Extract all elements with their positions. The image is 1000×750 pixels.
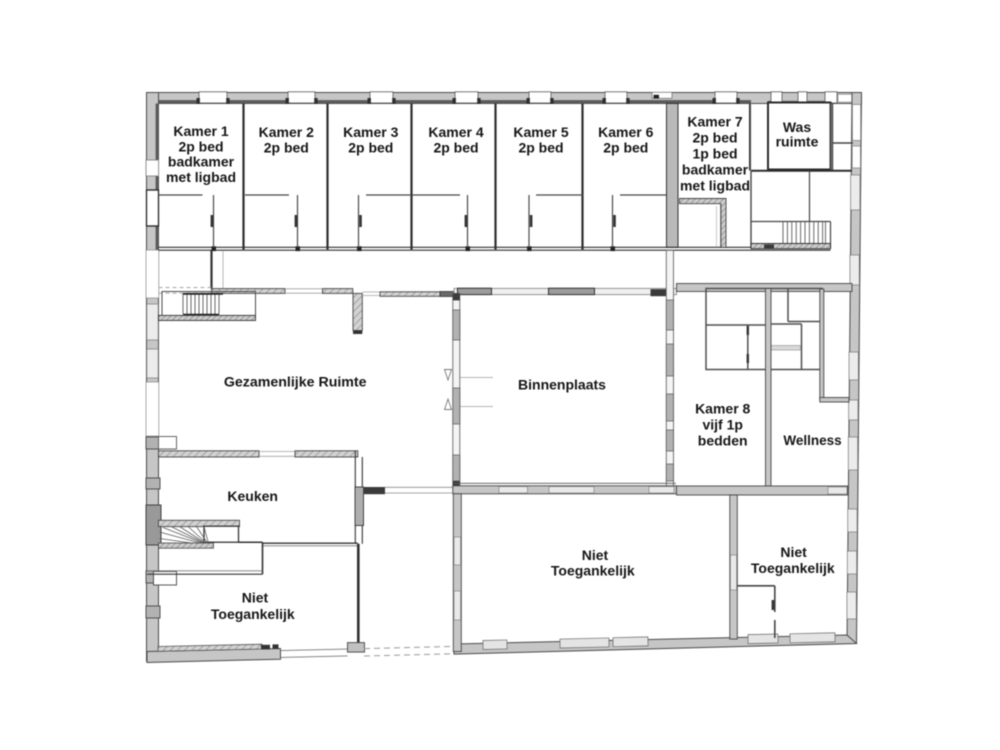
svg-text:Kamer 6: Kamer 6: [598, 124, 653, 140]
svg-text:2p bed: 2p bed: [603, 139, 648, 155]
svg-text:Toegankelijk: Toegankelijk: [551, 562, 635, 578]
svg-text:2p bed: 2p bed: [433, 139, 478, 155]
svg-text:met ligbad: met ligbad: [166, 169, 236, 185]
svg-text:badkamer: badkamer: [168, 154, 235, 170]
svg-text:2p bed: 2p bed: [178, 138, 223, 154]
svg-text:1p bed: 1p bed: [692, 146, 737, 162]
svg-text:Kamer 1: Kamer 1: [173, 123, 228, 139]
svg-text:Kamer 7: Kamer 7: [687, 114, 742, 130]
svg-text:Gezamenlijke Ruimte: Gezamenlijke Ruimte: [224, 374, 367, 390]
svg-text:Binnenplaats: Binnenplaats: [518, 377, 606, 393]
svg-text:badkamer: badkamer: [682, 162, 749, 178]
svg-text:met ligbad: met ligbad: [680, 178, 750, 194]
svg-text:2p bed: 2p bed: [692, 130, 737, 146]
svg-text:Niet: Niet: [780, 544, 807, 560]
svg-text:Keuken: Keuken: [227, 488, 278, 504]
svg-text:2p bed: 2p bed: [518, 139, 563, 155]
svg-text:Kamer 3: Kamer 3: [343, 124, 398, 140]
svg-text:2p bed: 2p bed: [348, 139, 393, 155]
svg-text:Niet: Niet: [242, 590, 269, 606]
svg-text:2p bed: 2p bed: [264, 139, 309, 155]
svg-text:Niet: Niet: [582, 547, 609, 563]
svg-text:Kamer 4: Kamer 4: [428, 124, 483, 140]
svg-text:vijf 1p: vijf 1p: [702, 417, 742, 433]
svg-text:Wellness: Wellness: [783, 433, 841, 448]
svg-text:Toegankelijk: Toegankelijk: [211, 606, 295, 622]
svg-text:Toegankelijk: Toegankelijk: [751, 560, 835, 576]
svg-text:Kamer 5: Kamer 5: [513, 124, 568, 140]
svg-text:Kamer 2: Kamer 2: [259, 124, 314, 140]
svg-text:Kamer 8: Kamer 8: [695, 401, 750, 417]
svg-text:bedden: bedden: [698, 433, 748, 449]
svg-text:ruimte: ruimte: [776, 133, 819, 149]
